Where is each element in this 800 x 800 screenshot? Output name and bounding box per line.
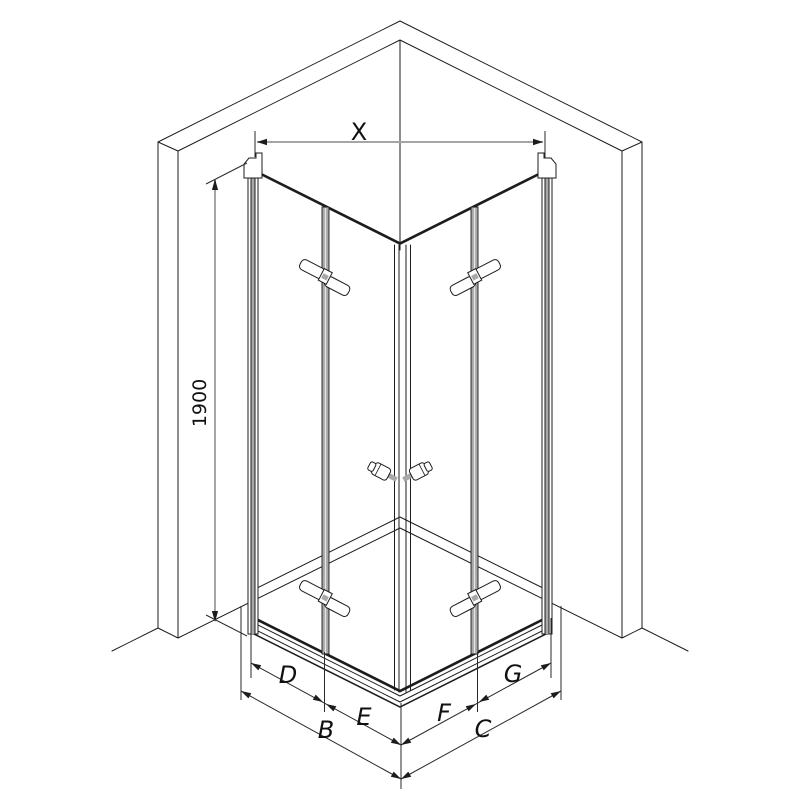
dim-label-x: X	[351, 118, 367, 146]
dim-label-e: E	[356, 703, 372, 731]
room-walls	[112, 21, 688, 651]
dim-label-g: G	[504, 660, 523, 688]
dim-label-1900: 1900	[189, 379, 211, 427]
dimension-left-segments: D E B	[241, 606, 401, 789]
dim-label-d: D	[279, 661, 297, 689]
right-door-handle	[400, 459, 434, 485]
diagram-canvas: X 1900 D E B	[0, 0, 800, 800]
dim-label-f: F	[437, 699, 452, 727]
dimension-height-1900: 1900	[189, 163, 247, 636]
shower-enclosure-diagram: X 1900 D E B	[0, 0, 800, 800]
left-wall-profile	[244, 153, 262, 634]
right-wall-profile	[538, 153, 556, 634]
center-door-edge-profiles	[395, 245, 411, 692]
dim-label-c: C	[475, 715, 492, 743]
dim-label-b: B	[318, 716, 334, 744]
dimension-right-segments: F G C	[401, 606, 561, 779]
